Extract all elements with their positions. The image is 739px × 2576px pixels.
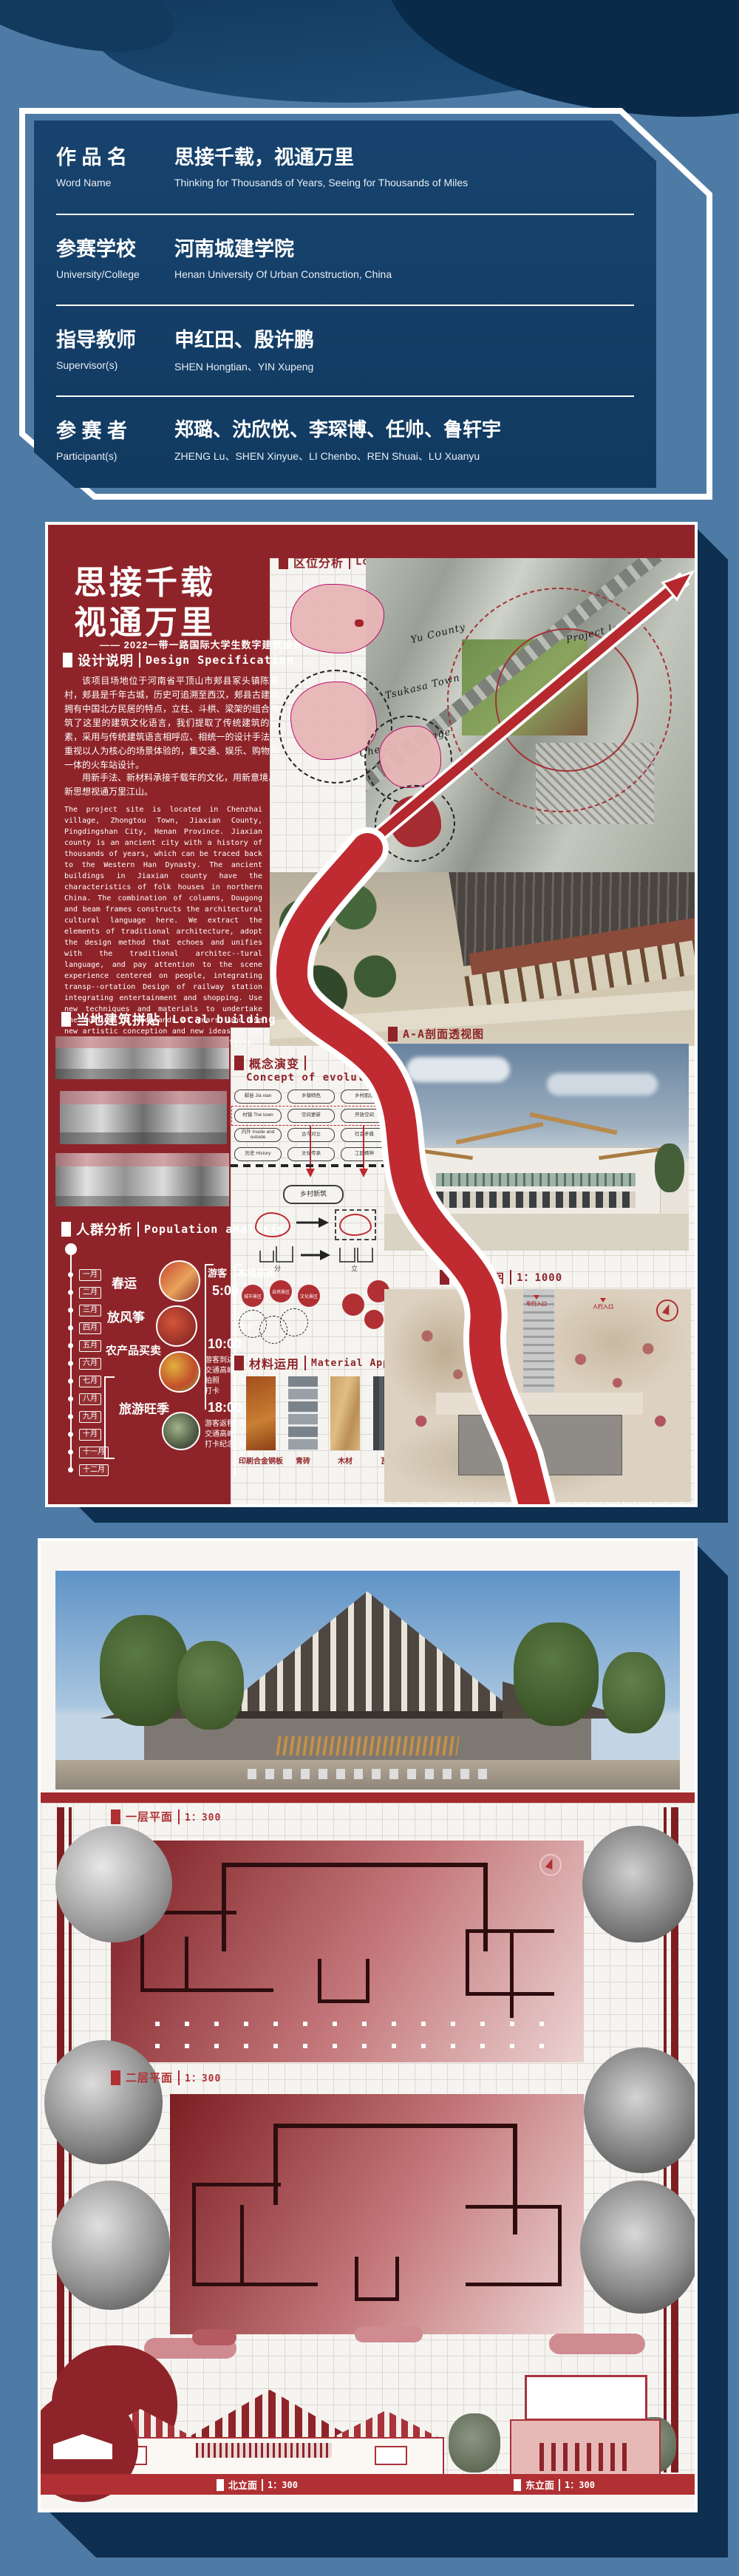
- door-stripes: [539, 2443, 628, 2471]
- red-divider-band: [41, 1792, 695, 1803]
- month-dot: [68, 1467, 73, 1472]
- field-value-cn: 思接千载，视通万里: [174, 141, 468, 170]
- month-dot: [68, 1450, 73, 1455]
- front-render: [55, 1571, 680, 1790]
- schedule-col-tourist: 游客: [208, 1265, 227, 1279]
- local-building-photo-strip: [60, 1091, 227, 1144]
- month-chip: 二月: [79, 1287, 101, 1299]
- elevation-scale: 1：300: [565, 2478, 595, 2491]
- section-title-en: Concept of evolution: [246, 1072, 386, 1084]
- section-population-header: 人群分析 Population analysis: [61, 1220, 285, 1239]
- info-card: 作 品 名 Word Name 思接千载，视通万里 Thinking for T…: [34, 120, 656, 488]
- section-title-cn: 当地建筑拼贴: [76, 1010, 160, 1029]
- section-local-building-header: 当地建筑拼贴 Local building: [61, 1010, 276, 1029]
- row-divider: [56, 395, 634, 397]
- photo-circle-tourists: [162, 1412, 200, 1450]
- wall-segment: [466, 1929, 469, 1996]
- field-label-cn: 参赛学校: [56, 233, 174, 262]
- concept-blob-diagram: [255, 1212, 290, 1237]
- east-elevation-drawing: [510, 2375, 658, 2474]
- month-chip: 十二月: [79, 1464, 109, 1476]
- field-value-en: Thinking for Thousands of Years, Seeing …: [174, 177, 468, 188]
- poster2-board: 一层平面 1：300 二层平面 1：300: [41, 1541, 695, 2509]
- site-plan-drawing: 人行入口 车行入口 人行入口: [384, 1289, 691, 1502]
- section-title-cn: 人群分析: [76, 1220, 132, 1239]
- label-marker-icon: [514, 2479, 521, 2491]
- field-label-cn: 参 赛 者: [56, 415, 174, 444]
- side-window: [375, 2446, 407, 2465]
- awning-screen: [276, 1736, 460, 1756]
- schedule-col-local: 本地居民: [237, 1265, 276, 1279]
- scenic-circle-label: 自然景区: [272, 1288, 290, 1295]
- concept-box: 郏县 Jia xian: [234, 1090, 282, 1104]
- section-siteplan-header: 总平面图 1：1000: [440, 1268, 562, 1286]
- month-dot: [68, 1361, 73, 1366]
- section-title-cn: 概念演变: [249, 1054, 299, 1072]
- section-divider: [304, 1356, 306, 1370]
- wall-segment: [466, 1992, 554, 1996]
- ground: [384, 1214, 689, 1251]
- activity-label: 放风筝: [107, 1307, 145, 1325]
- concept-transform-arrow: [301, 1249, 330, 1261]
- activity-label: 旅游旺季: [119, 1399, 169, 1417]
- platform-band: [436, 1192, 636, 1208]
- concept-transform-arrow: [296, 1217, 329, 1228]
- wall-segment: [140, 1988, 273, 1992]
- cloud-shape: [549, 2334, 645, 2354]
- schedule-time: 10:00: [208, 1336, 242, 1352]
- scenic-circle-label: 文化景区: [300, 1293, 318, 1299]
- concept-box: 乡村肌理: [341, 1090, 388, 1104]
- field-label-en: University/College: [56, 268, 174, 280]
- floor2-plan-drawing: [170, 2094, 584, 2334]
- wall-segment: [240, 2205, 244, 2286]
- wall-segment: [395, 2257, 399, 2301]
- cloud-shape: [547, 1073, 658, 1095]
- section-title-en: Local building: [172, 1013, 276, 1026]
- floor2-label: 二层平面: [126, 2070, 173, 2085]
- photo-circle-kite: [156, 1305, 197, 1347]
- aa-section-render: [384, 1044, 689, 1251]
- wall-segment: [466, 2205, 562, 2209]
- schedule-note-tourist: 游客返程 交通高峰 打卡纪念: [205, 1419, 237, 1450]
- month-dot: [68, 1343, 73, 1348]
- north-elevation-drawing: [85, 2390, 454, 2474]
- wall-segment: [222, 1863, 488, 1867]
- tree-blob: [389, 1140, 420, 1192]
- field-label-en: Participant(s): [56, 450, 174, 462]
- season-bracket: [104, 1376, 115, 1459]
- field-label-en: Word Name: [56, 177, 174, 188]
- month-dot: [68, 1308, 73, 1313]
- north-arrow-icon: [656, 1299, 678, 1322]
- east-elevation-label: 东立面 1：300: [514, 2478, 595, 2492]
- schedule-time: 5:00: [212, 1283, 239, 1299]
- floor1-scale: 1：300: [185, 1809, 221, 1824]
- wall-segment: [273, 2124, 278, 2205]
- activity-label: 农产品买卖: [106, 1342, 161, 1358]
- section-marker-icon: [111, 1809, 120, 1824]
- section-divider: [178, 1809, 180, 1824]
- section-marker-icon: [111, 2070, 120, 2085]
- section-marker-icon: [61, 1222, 71, 1237]
- month-dot: [68, 1396, 73, 1401]
- scenic-cluster-ring: [280, 1308, 308, 1336]
- mini-elevation: [53, 2434, 112, 2459]
- landscape-photo-circle: [52, 2181, 170, 2310]
- section-floor2-header: 二层平面 1：300: [111, 2070, 221, 2085]
- roof-slope: [456, 1122, 544, 1145]
- column-dots-row: [155, 2022, 554, 2026]
- floor2-scale: 1：300: [185, 2070, 221, 2084]
- scenic-circle-label: 城市景区: [244, 1293, 262, 1299]
- section-aa-header: A-A剖面透视图: [388, 1026, 484, 1041]
- tree-blob: [514, 1622, 599, 1726]
- month-chip: 六月: [79, 1358, 101, 1370]
- tree-blob: [655, 1143, 684, 1192]
- card-row-supervisors: 指导教师 Supervisor(s) 申红田、殷许鹏 SHEN Hongtian…: [56, 324, 633, 374]
- cloud-shape: [192, 2329, 236, 2345]
- section-marker-icon: [61, 1012, 71, 1027]
- interior-photo-circle: [55, 1826, 172, 1943]
- field-label-cn: 指导教师: [56, 324, 174, 353]
- platform-photo-circle: [44, 2040, 163, 2164]
- month-chip: 八月: [79, 1393, 101, 1405]
- section-marker-icon: [234, 1056, 244, 1070]
- grey-tree-blob: [449, 2413, 500, 2473]
- forecourt: [436, 1393, 643, 1415]
- wall-segment: [192, 2183, 196, 2286]
- field-value-en: SHEN Hongtian、YIN Xupeng: [174, 359, 314, 374]
- month-dot: [68, 1379, 73, 1384]
- elevation-name: 东立面: [525, 2478, 554, 2492]
- month-dot: [68, 1325, 73, 1331]
- column-dots-row: [155, 2044, 554, 2048]
- poster1-board: 思接千载 视通万里 —— 2022一带一路国际大学生数字建筑设计竞赛 设计说明 …: [48, 525, 695, 1504]
- wall-segment: [466, 2283, 562, 2286]
- tree-blob: [177, 1641, 244, 1730]
- gable-roof-edge: [203, 1711, 532, 1719]
- activity-label: 春运: [112, 1273, 137, 1291]
- field-label-cn: 作 品 名: [56, 141, 174, 170]
- wall-segment: [222, 1863, 226, 1951]
- exterior-photo-circle: [582, 1826, 693, 1943]
- elevation-scale: 1：300: [268, 2478, 298, 2491]
- house-glyph: [357, 1248, 373, 1262]
- month-chip: 五月: [79, 1340, 101, 1352]
- label-divider: [262, 2479, 263, 2491]
- cloud-shape: [406, 1057, 510, 1082]
- elevation-name: 北立面: [228, 2478, 257, 2492]
- month-chip: 七月: [79, 1376, 101, 1387]
- axis-arrow: [48, 525, 695, 894]
- entry-label: 人行入口: [464, 1298, 485, 1311]
- scenic-circle: 文化景区: [298, 1285, 320, 1307]
- section-marker-icon: [388, 1027, 398, 1041]
- building-photo-circle: [584, 2047, 695, 2173]
- concept-box: 乡镇特色: [287, 1090, 335, 1104]
- section-title-cn: A-A剖面透视图: [403, 1026, 484, 1041]
- field-value-en: ZHENG Lu、SHEN Xinyue、LI Chenbo、REN Shuai…: [174, 449, 501, 463]
- main-render: [270, 872, 695, 1046]
- wall-segment: [355, 2257, 358, 2301]
- section-divider: [137, 1222, 139, 1237]
- north-elevation-label: 北立面 1：300: [217, 2478, 298, 2492]
- wall-segment: [318, 1959, 321, 2003]
- month-chip: 十月: [79, 1429, 101, 1441]
- tree-blob: [602, 1652, 665, 1733]
- card-row-participants: 参 赛 者 Participant(s) 郑璐、沈欣悦、李琛博、任帅、鲁轩宇 Z…: [56, 415, 647, 463]
- section-divider: [510, 1270, 511, 1285]
- schedule-note-tourist: 游客到达 交通高峰 拍照 打卡: [205, 1356, 237, 1397]
- section-title-cn: 材料运用: [249, 1354, 299, 1372]
- section-marker-icon: [440, 1270, 449, 1285]
- gable-roof: [212, 1591, 522, 1717]
- concept-blob-inner: [339, 1214, 372, 1236]
- section-title-cn: 总平面图: [454, 1268, 505, 1286]
- material-swatch-copper: [246, 1376, 276, 1450]
- field-value-cn: 郑璐、沈欣悦、李琛博、任帅、鲁轩宇: [174, 415, 501, 442]
- wall-segment: [366, 1959, 369, 2003]
- gable-center: [188, 2390, 351, 2437]
- gable-right: [330, 2410, 441, 2439]
- north-arrow-icon: [539, 1854, 562, 1876]
- month-chip: 九月: [79, 1411, 101, 1423]
- glyph-label: 立: [351, 1263, 358, 1273]
- row-divider: [56, 305, 634, 306]
- label-divider: [559, 2479, 560, 2491]
- row-divider: [56, 214, 634, 215]
- month-dot: [68, 1290, 73, 1295]
- window-band: [196, 2443, 332, 2458]
- scenic-circle: 城市景区: [242, 1285, 264, 1307]
- wall-segment: [185, 1937, 188, 1992]
- section-divider: [304, 1056, 306, 1070]
- scenic-circle: [364, 1310, 384, 1329]
- photo-circle-spring-festival: [159, 1260, 200, 1302]
- field-value-cn: 申红田、殷许鹏: [174, 324, 314, 353]
- wall-segment: [318, 1999, 369, 2003]
- material-swatch-brick: [288, 1376, 318, 1450]
- cloud-shape: [355, 2326, 423, 2342]
- section-divider: [166, 1012, 167, 1027]
- wall-segment: [483, 1863, 488, 1951]
- glass-band: [436, 1173, 636, 1186]
- scenic-circle: 自然景区: [270, 1280, 292, 1302]
- entry-label: 人行入口: [593, 1298, 613, 1311]
- wall-segment: [510, 1929, 514, 2018]
- wall-segment: [355, 2297, 399, 2301]
- wall-segment: [558, 2205, 562, 2286]
- month-dot: [68, 1414, 73, 1419]
- house-glyph: [339, 1248, 355, 1262]
- wall-segment: [273, 2124, 517, 2128]
- house-glyph: [276, 1246, 293, 1262]
- label-marker-icon: [217, 2479, 224, 2491]
- card-row-work-name: 作 品 名 Word Name 思接千载，视通万里 Thinking for T…: [56, 141, 633, 188]
- crosswalk: [248, 1769, 491, 1779]
- month-dot: [68, 1432, 73, 1437]
- month-chip: 一月: [79, 1269, 101, 1281]
- house-glyph: [259, 1251, 274, 1262]
- section-floor1-header: 一层平面 1：300: [111, 1809, 221, 1824]
- field-value-cn: 河南城建学院: [174, 233, 392, 262]
- wall-segment: [513, 2124, 517, 2235]
- concept-result-box: 乡村新筑: [283, 1185, 344, 1204]
- concept-arrows: [231, 1120, 399, 1186]
- local-building-photo-strip: [55, 1036, 229, 1079]
- field-value-en: Henan University Of Urban Construction, …: [174, 268, 392, 280]
- timeline-start-dot: [65, 1243, 77, 1255]
- entry-label: 车行入口: [526, 1295, 547, 1308]
- field-label-en: Supervisor(s): [56, 359, 174, 371]
- glyph-label: 分: [274, 1263, 281, 1273]
- siteplan-scale: 1：1000: [517, 1270, 562, 1285]
- section-divider: [178, 2070, 180, 2085]
- material-swatch-wood: [330, 1376, 360, 1450]
- street-photo-circle: [580, 2181, 695, 2314]
- local-building-photo-strip: [55, 1153, 229, 1206]
- scenic-circle: [342, 1294, 364, 1316]
- station-building-mass: [458, 1415, 622, 1475]
- floor1-label: 一层平面: [126, 1809, 173, 1824]
- photo-circle-produce: [159, 1351, 200, 1393]
- card-row-university: 参赛学校 University/College 河南城建学院 Henan Uni…: [56, 233, 633, 280]
- elevation-ground-strip: [41, 2474, 695, 2495]
- floor1-plan-drawing: [111, 1841, 584, 2062]
- schedule-time: 18:00: [208, 1400, 242, 1416]
- month-chip: 四月: [79, 1322, 101, 1334]
- section-concept-header: 概念演变: [234, 1054, 306, 1072]
- wall-segment: [192, 2283, 318, 2286]
- month-chip: 三月: [79, 1305, 101, 1316]
- wall-segment: [192, 2183, 281, 2186]
- upper-volume: [525, 2375, 647, 2421]
- month-dot: [68, 1272, 73, 1277]
- tree-blob: [100, 1615, 188, 1726]
- section-marker-icon: [234, 1356, 244, 1370]
